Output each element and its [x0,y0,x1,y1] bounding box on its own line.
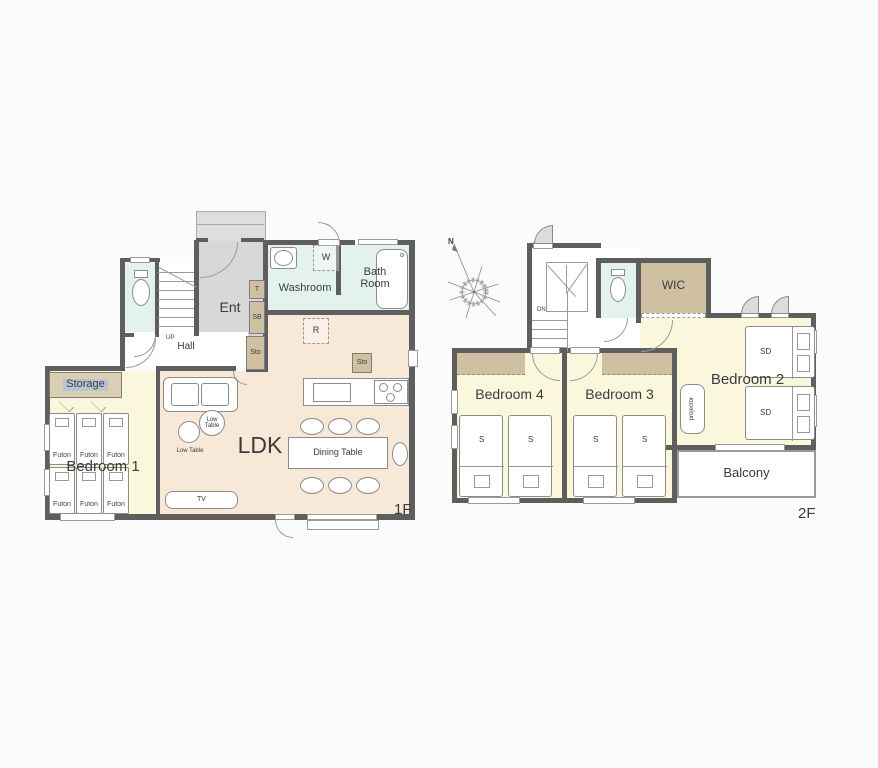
hall-label: Hall [161,342,211,353]
stair-tread [158,290,194,291]
dining-table: Dining Table [288,437,388,469]
tv-board: TV [165,491,238,509]
kitchen-sink [313,383,351,402]
wall [409,240,415,520]
futon-label: Futon [80,501,98,508]
kitchen-storage-box: Sto [352,353,372,373]
pillow [588,475,604,488]
stair-tread [158,317,194,318]
pillow [797,394,810,411]
dining-chair [356,418,380,435]
pillow [109,418,123,427]
wall [156,371,160,514]
pillow [797,355,810,372]
bed-single: S [622,415,666,497]
stair-tread [158,299,194,300]
bathtub-drain [400,253,404,257]
compass: N [444,236,508,324]
balcony-label: Balcony [677,466,816,480]
bedroom2-label: Bedroom 2 [690,372,805,388]
wall [706,258,711,313]
floor-1-plan: T SB Sto Sto Storage W R UP Low Table Lo… [45,211,417,541]
window [468,497,520,504]
wall [562,348,567,503]
stove-burner [379,383,388,392]
north-label: N [448,238,454,246]
bed-divider [623,466,667,467]
low-table-label: Low Table [202,417,222,430]
dining-chair [300,418,324,435]
ent-label: Ent [211,300,249,315]
toilet-tag-label: T [255,286,259,293]
window [715,444,785,451]
pillow [797,333,810,350]
compass-rose [444,236,508,324]
bed-divider [460,466,504,467]
dining-chair [356,477,380,494]
floor1-tag: 1F [394,502,412,518]
bed-divider [574,466,618,467]
dining-chair [328,477,352,494]
bed-size-label: S [593,436,598,444]
sofa-cushion [201,383,229,406]
stove-burner [386,393,395,402]
toilet-tag-box: T [249,280,265,299]
wall [45,366,123,371]
stair-tread [158,326,194,327]
toilet-tank [134,270,148,278]
stair-tread [532,329,567,330]
porch-step-line [196,224,264,225]
window [60,513,115,521]
wall [241,238,264,242]
door-arc-washroom [318,222,340,244]
stair-divider [567,292,568,352]
shoe-box: SB [249,301,265,334]
bed-size-label: S [479,436,484,444]
futon-label: Futon [53,501,71,508]
pillow [474,475,490,488]
bed-size-label: SD [760,409,771,417]
toilet-bowl [610,277,626,302]
bed-single: S [573,415,617,497]
wall [263,240,355,245]
bed-single: S [459,415,503,497]
door-flap [741,296,759,314]
bedroom1-label: Bedroom 1 [50,459,156,475]
pillow [637,475,653,488]
closet-bedroom4 [457,353,525,375]
dining-chair [328,418,352,435]
washroom-sink-bowl [274,250,293,266]
projector-label: projector [689,397,695,420]
window [408,350,418,367]
window [358,239,398,245]
sliding-window [307,520,379,530]
tv-label: TV [197,496,206,503]
stair-fan-line [566,265,567,293]
refrigerator-label: R [313,326,320,335]
stairs-1f [158,263,194,333]
shoe-box-label: SB [252,314,261,321]
stair-tread [532,347,567,348]
refrigerator-box: R [303,318,329,344]
stair-tread [532,338,567,339]
low-table [178,421,200,443]
washroom-label: Washroom [271,283,339,295]
storage-closet: Storage [49,372,122,398]
wic-label: WIC [641,279,706,292]
door-flap [771,296,789,314]
sofa-cushion [171,383,199,406]
dining-chair [392,442,408,466]
stair-tread [532,320,567,321]
bed-size-label: S [528,436,533,444]
door-flap [534,225,553,244]
projector: projector [680,384,705,434]
pillow [523,475,539,488]
low-table-label: Low Table [170,448,210,454]
bed-single: S [508,415,552,497]
wall [672,348,677,503]
stair-tread [158,308,194,309]
stairs-down-label: DN [537,307,546,313]
bedroom4-label: Bedroom 4 [457,387,562,402]
window [583,497,635,504]
wall [120,258,125,337]
toilet-bowl [132,279,150,306]
stair-tread [158,272,194,273]
wall [596,258,711,263]
washer-box: W [313,245,339,271]
futon-label: Futon [107,501,125,508]
wall [395,240,415,245]
storage-small-box: Sto [246,336,265,370]
pillow [797,416,810,433]
wall [263,310,415,315]
wall [194,240,199,336]
bed-divider [792,387,793,441]
bed-size-label: S [642,436,647,444]
closet-bedroom3 [602,353,672,375]
storage-label: Storage [63,379,108,391]
stairs-up-label: UP [166,335,174,341]
window [130,257,150,263]
kitchen-storage-label: Sto [357,359,368,366]
door-arc-ldk-exterior [275,520,293,538]
toilet-tank [611,269,625,276]
washer-label: W [322,253,331,262]
pillow [82,418,96,427]
bathroom-label: Bath Room [352,267,398,290]
floor2-tag: 2F [798,506,816,522]
dining-table-label: Dining Table [313,448,362,457]
wall [156,366,236,371]
ldk-label: LDK [220,433,300,457]
stove-burner [393,383,402,392]
window [451,425,458,449]
bed-size-label: SD [760,348,771,356]
bed-divider [509,466,553,467]
bedroom3-label: Bedroom 3 [567,387,672,402]
folding-door-wic [641,313,706,318]
bed-semi-double: SD [745,386,815,440]
dining-chair [300,477,324,494]
wall [706,313,816,318]
wall [527,243,532,353]
storage-small-label: Sto [250,349,261,356]
pillow [55,418,69,427]
wall [596,258,601,318]
